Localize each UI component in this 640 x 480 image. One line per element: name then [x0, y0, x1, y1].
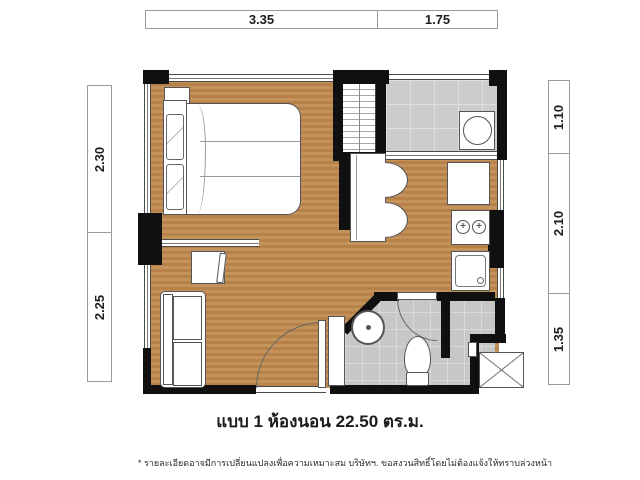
- ac-ledge: [479, 352, 524, 388]
- dim-top-width-2: 1.75: [377, 10, 498, 29]
- bed-sheet-line: [200, 176, 300, 177]
- pillow: [166, 114, 184, 160]
- balcony-railing: [386, 74, 489, 80]
- right-wall-lower: [497, 268, 504, 298]
- sofa-backrest: [163, 294, 173, 385]
- wall-segment: [488, 210, 504, 268]
- wall-segment: [143, 70, 169, 84]
- wall-segment: [333, 84, 343, 158]
- toilet-tank: [406, 372, 429, 386]
- dim-left-height-1: 2.30: [87, 85, 112, 233]
- dim-label: 3.35: [249, 12, 274, 27]
- dim-right-height-3: 1.35: [548, 293, 570, 385]
- dim-label: 2.10: [552, 211, 567, 236]
- pillow: [166, 164, 184, 210]
- dim-label: 1.75: [425, 12, 450, 27]
- burner-icon: +: [472, 220, 486, 234]
- disclaimer-footnote: * รายละเอียดอาจมีการเปลี่ยนแปลงเพื่อความ…: [138, 456, 552, 470]
- washing-machine-drum: [463, 116, 492, 145]
- dim-label: 2.30: [92, 146, 107, 171]
- sofa-cushion: [173, 296, 202, 340]
- wall-segment: [330, 385, 479, 394]
- dim-top-width-1: 3.35: [145, 10, 378, 29]
- entry-side-panel: [328, 316, 345, 386]
- sink-drain: [477, 277, 484, 284]
- wall-segment: [143, 348, 151, 390]
- shower-valve: [468, 342, 477, 357]
- dim-left-height-2: 2.25: [87, 232, 112, 382]
- left-wall-window-upper: [144, 84, 151, 213]
- dim-label: 1.10: [552, 104, 567, 129]
- left-wall-window-lower: [144, 265, 151, 348]
- burner-icon: +: [456, 220, 470, 234]
- counter-line: [356, 155, 357, 240]
- dim-label: 2.25: [92, 294, 107, 319]
- bed-sheet-line: [200, 141, 300, 142]
- wall-segment: [376, 84, 386, 158]
- dim-label: 1.35: [552, 326, 567, 351]
- wall-segment: [138, 213, 162, 265]
- entry-door-leaf: [318, 320, 326, 388]
- bedroom-window: [167, 74, 333, 82]
- refrigerator: [447, 162, 490, 205]
- bedroom-partition: [151, 239, 259, 247]
- balcony-sliding-door: [386, 151, 497, 160]
- shower-partition-wall: [441, 292, 450, 358]
- wall-segment: [333, 70, 389, 84]
- floor-plan-page: 3.35 1.75 2.30 2.25 1.10 2.10 1.35: [0, 0, 640, 480]
- dim-right-height-2: 2.10: [548, 153, 570, 294]
- wall-segment: [497, 84, 507, 160]
- wardrobe: [343, 84, 376, 152]
- sofa-cushion: [173, 342, 202, 386]
- basin-faucet: [366, 325, 371, 330]
- right-wall-upper: [497, 160, 504, 210]
- plan-title: แบบ 1 ห้องนอน 22.50 ตร.ม.: [0, 408, 640, 435]
- wardrobe-divider: [359, 84, 360, 152]
- dim-right-height-1: 1.10: [548, 80, 570, 154]
- wall-segment: [495, 298, 505, 338]
